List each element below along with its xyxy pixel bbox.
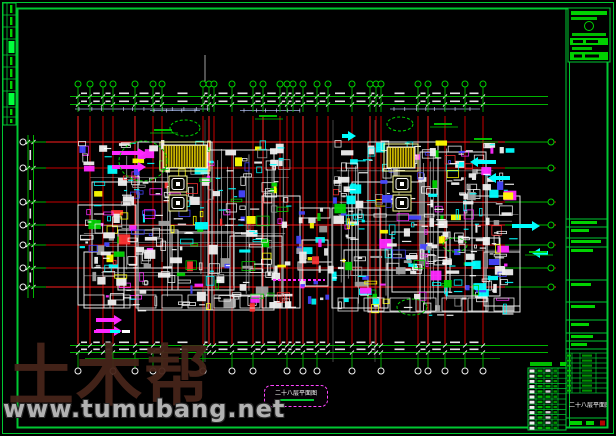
revision-table [528, 362, 566, 430]
building-right [332, 141, 520, 316]
binding-strip [3, 3, 16, 125]
title-block [566, 219, 608, 426]
floor-plan-label-text: 二十八层平面图 [275, 391, 317, 397]
title-block-drawing-title: 二十八层平面图 [569, 402, 607, 409]
floor-plan-label-underline [278, 399, 314, 401]
building-left [78, 140, 300, 312]
certification-stamp [568, 8, 610, 62]
cad-sheet: 土木帮 www.tumubang.net 二十八层平面图 二十八层平面图 [0, 0, 616, 436]
floor-plan-label: 二十八层平面图 [264, 385, 328, 407]
drawing-canvas [0, 0, 616, 436]
